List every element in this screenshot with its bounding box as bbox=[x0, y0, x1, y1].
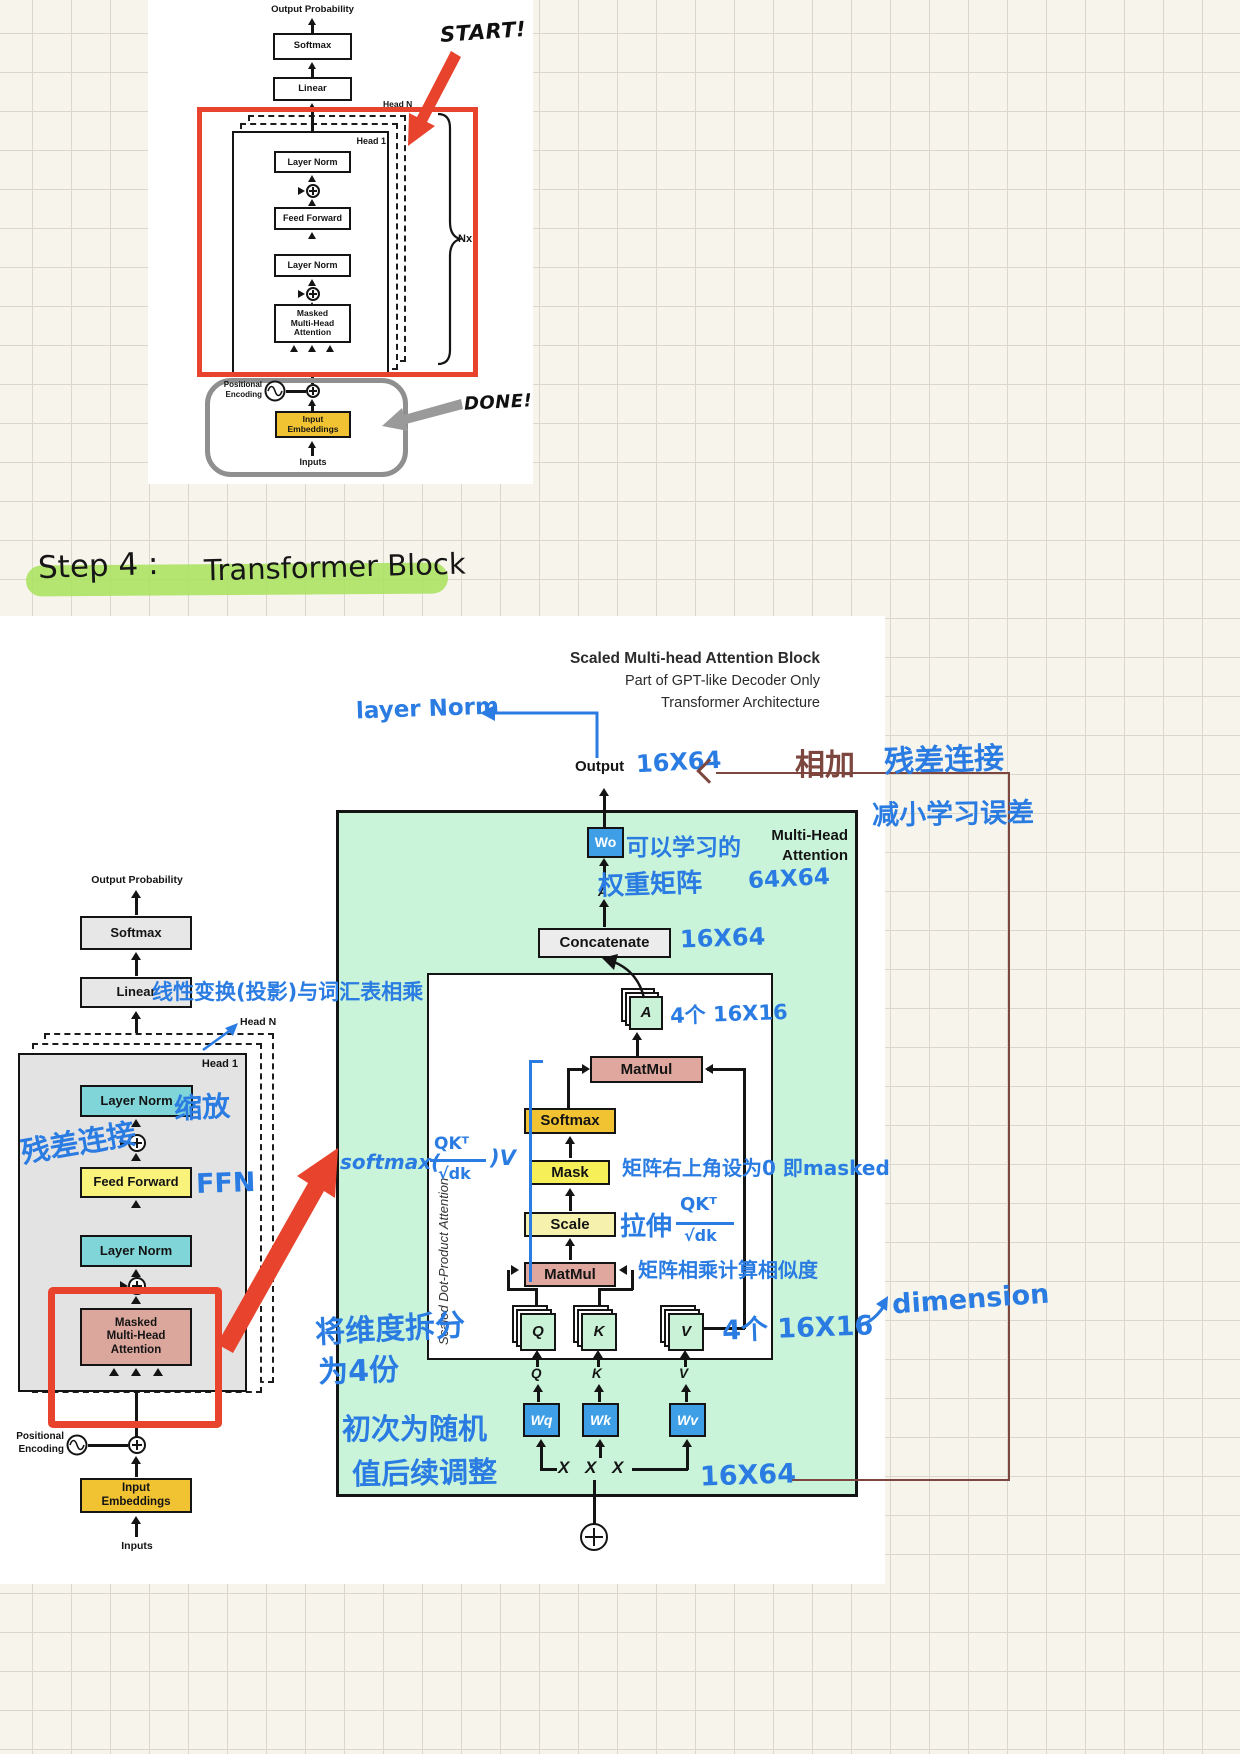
line bbox=[540, 1446, 543, 1470]
main-title-line1: Scaled Multi-head Attention Block bbox=[420, 650, 820, 668]
top-softmax-box: Softmax bbox=[273, 33, 352, 60]
line bbox=[603, 795, 606, 827]
line bbox=[569, 1143, 572, 1158]
arrow bbox=[565, 1238, 575, 1246]
arrow bbox=[682, 1439, 692, 1447]
mask-note: 矩阵右上角设为0 即masked bbox=[622, 1152, 890, 1181]
step-title-name: Transformer Block bbox=[204, 547, 466, 588]
add-note: 相加 bbox=[795, 740, 855, 784]
arrow bbox=[565, 1188, 575, 1196]
arrow bbox=[131, 1269, 141, 1277]
matmul-top-box: MatMul bbox=[590, 1056, 703, 1083]
label: Positional bbox=[206, 380, 262, 390]
top-positional-encoding-label: Positional Encoding bbox=[206, 380, 262, 401]
weight-matrix-note: 权重矩阵 bbox=[597, 862, 702, 903]
label: Embeddings bbox=[101, 1496, 170, 1509]
stretch-note: 拉伸 bbox=[620, 1206, 672, 1243]
arrow bbox=[593, 1350, 603, 1358]
label: K bbox=[594, 1323, 605, 1340]
v-label: V bbox=[679, 1366, 688, 1381]
wq-box: Wq bbox=[523, 1403, 560, 1437]
wv-box: Wv bbox=[669, 1403, 706, 1437]
matmul-bottom-box: MatMul bbox=[524, 1262, 616, 1287]
line bbox=[537, 1391, 540, 1402]
learnable-note: 可以学习的 bbox=[626, 828, 741, 862]
v-card: V bbox=[668, 1313, 704, 1351]
label: Q bbox=[532, 1323, 544, 1340]
scale-zh-note: 缩放 bbox=[173, 1085, 231, 1128]
line bbox=[569, 1195, 572, 1211]
left-input-embeddings-box: InputEmbeddings bbox=[80, 1478, 192, 1513]
arrow bbox=[680, 1350, 690, 1358]
label: Positional bbox=[4, 1430, 64, 1443]
arrow bbox=[511, 1265, 519, 1275]
label: Wk bbox=[590, 1412, 611, 1428]
notebook-page: Output Probability Softmax Linear Head N… bbox=[0, 0, 1240, 1754]
line bbox=[286, 390, 306, 393]
mask-box: Mask bbox=[530, 1160, 610, 1185]
start-arrow bbox=[398, 48, 462, 152]
left-softmax-box: Softmax bbox=[80, 916, 192, 950]
arrow bbox=[131, 890, 141, 898]
red-focus-rect-main bbox=[48, 1287, 222, 1428]
linear-note: 线性变换(投影)与词汇表相乘 bbox=[152, 976, 423, 1006]
residual-line-bottom bbox=[792, 1479, 1010, 1481]
wo-box: Wo bbox=[587, 827, 624, 858]
left-layernorm2-box: Layer Norm bbox=[80, 1235, 192, 1267]
arrow bbox=[705, 1064, 713, 1074]
left-feedforward-box: Feed Forward bbox=[80, 1167, 192, 1198]
left-output-probability: Output Probability bbox=[88, 874, 186, 886]
arrow bbox=[308, 441, 316, 448]
line bbox=[135, 959, 138, 976]
line bbox=[599, 1446, 602, 1458]
arrow bbox=[599, 788, 609, 796]
line bbox=[311, 447, 314, 456]
arrow bbox=[131, 1153, 141, 1161]
head-n-blue-arrow bbox=[198, 1020, 244, 1054]
arrow bbox=[533, 1384, 543, 1392]
big-red-arrow bbox=[205, 1138, 350, 1366]
sine-symbol bbox=[264, 380, 286, 402]
formula-denominator: √dk bbox=[438, 1164, 471, 1183]
label: Mask bbox=[551, 1164, 589, 1181]
line bbox=[507, 1288, 537, 1291]
line bbox=[685, 1391, 688, 1402]
label: Wo bbox=[595, 834, 617, 850]
a-count-note: 4个 16X16 bbox=[670, 996, 789, 1030]
formula-suffix: )V bbox=[490, 1146, 516, 1170]
label: V bbox=[681, 1323, 691, 1340]
layer-norm-arrow bbox=[478, 700, 606, 762]
line bbox=[593, 1480, 596, 1524]
x-label-2: X bbox=[585, 1458, 596, 1478]
top-inputs-label: Inputs bbox=[287, 457, 339, 467]
label: Wq bbox=[531, 1412, 553, 1428]
main-title-line2: Part of GPT-like Decoder Only bbox=[420, 673, 820, 689]
left-inputs-label: Inputs bbox=[108, 1540, 166, 1552]
line bbox=[569, 1245, 572, 1260]
left-head1-label: Head 1 bbox=[188, 1058, 238, 1070]
concat-hook-arrow bbox=[598, 952, 654, 1002]
scale-box: Scale bbox=[524, 1212, 616, 1237]
softmax-box: Softmax bbox=[524, 1108, 616, 1134]
blue-bracket-line bbox=[529, 1060, 532, 1282]
arrow bbox=[308, 62, 316, 69]
wk-box: Wk bbox=[582, 1403, 619, 1437]
add-symbol-large bbox=[580, 1523, 608, 1551]
arrow bbox=[582, 1064, 590, 1074]
init-note-line2: 值后续调整 bbox=[352, 1449, 498, 1494]
add-symbol bbox=[306, 384, 320, 398]
k-card: K bbox=[581, 1313, 617, 1351]
line bbox=[598, 1391, 601, 1402]
label: Encoding bbox=[4, 1443, 64, 1456]
k-label: K bbox=[592, 1366, 602, 1381]
top-linear-box: Linear bbox=[273, 77, 352, 101]
line bbox=[311, 24, 314, 33]
arrow bbox=[632, 1032, 642, 1040]
q-card: Q bbox=[520, 1313, 556, 1351]
arrow bbox=[131, 1516, 141, 1524]
dimension-note: dimension bbox=[891, 1279, 1050, 1321]
x-label-3: X bbox=[612, 1458, 623, 1478]
left-head-n-label: Head N bbox=[240, 1016, 276, 1028]
arrow bbox=[131, 1011, 141, 1019]
matmul-note: 矩阵相乘计算相似度 bbox=[638, 1254, 818, 1283]
label: MatMul bbox=[544, 1266, 596, 1283]
line bbox=[631, 1270, 634, 1290]
label: Layer Norm bbox=[100, 1094, 172, 1109]
reduce-error-note: 减小学习误差 bbox=[872, 791, 1035, 833]
q-label: Q bbox=[531, 1366, 542, 1381]
formula-prefix: softmax( bbox=[340, 1150, 440, 1174]
label: Input bbox=[122, 1482, 150, 1495]
arrow bbox=[308, 18, 316, 25]
label: Concatenate bbox=[559, 934, 649, 951]
step-title-prefix: Step 4 : bbox=[37, 546, 159, 586]
label: Layer Norm bbox=[100, 1244, 172, 1259]
line bbox=[598, 1288, 633, 1291]
label: A bbox=[641, 1004, 652, 1021]
stretch-bar bbox=[676, 1222, 734, 1225]
arrow bbox=[308, 399, 316, 406]
line bbox=[686, 1446, 689, 1470]
qkv-count-note: 4个 16X16 bbox=[721, 1303, 873, 1347]
top-input-embeddings-box: Input Embeddings bbox=[275, 411, 351, 438]
line bbox=[603, 906, 606, 927]
arrow bbox=[131, 1456, 141, 1464]
label: Softmax bbox=[110, 926, 161, 941]
label: Wv bbox=[677, 1412, 698, 1428]
init-note-line1: 初次为随机 bbox=[342, 1406, 487, 1448]
residual-line-right bbox=[1008, 772, 1010, 1481]
sine-symbol-main bbox=[66, 1434, 88, 1456]
input-dim-note: 16X64 bbox=[699, 1458, 796, 1492]
label: Linear bbox=[298, 84, 327, 95]
arrow bbox=[681, 1384, 691, 1392]
line bbox=[636, 1039, 639, 1056]
line bbox=[135, 1523, 138, 1537]
top-output-probability: Output Probability bbox=[250, 4, 375, 15]
label: Embeddings bbox=[287, 425, 338, 435]
label: Softmax bbox=[294, 41, 331, 52]
line bbox=[135, 1463, 138, 1477]
arrow bbox=[536, 1439, 546, 1447]
line bbox=[507, 1270, 510, 1290]
label: Softmax bbox=[540, 1112, 599, 1129]
line bbox=[311, 68, 314, 77]
residual-note: 残差连接 bbox=[883, 733, 1004, 781]
line bbox=[540, 1468, 557, 1471]
label: Scale bbox=[550, 1216, 589, 1233]
arrow bbox=[619, 1265, 627, 1275]
arrow bbox=[532, 1350, 542, 1358]
done-arrow bbox=[376, 396, 468, 436]
arrow bbox=[594, 1384, 604, 1392]
label: MatMul bbox=[621, 1061, 673, 1078]
arrow bbox=[595, 1439, 605, 1447]
stretch-numerator: QKᵀ bbox=[680, 1194, 717, 1215]
done-label: DONE! bbox=[463, 390, 532, 415]
arrow bbox=[131, 1200, 141, 1208]
left-positional-encoding-label: Positional Encoding bbox=[4, 1430, 64, 1456]
add-symbol bbox=[128, 1436, 146, 1454]
concat-dim-note: 16X64 bbox=[680, 923, 766, 954]
label: Linear bbox=[116, 985, 155, 1000]
line bbox=[567, 1068, 570, 1108]
arrow bbox=[565, 1136, 575, 1144]
line bbox=[88, 1444, 128, 1447]
label: Encoding bbox=[206, 390, 262, 400]
wo-dim-note: 64X64 bbox=[747, 864, 830, 894]
dimension-arrow bbox=[852, 1294, 896, 1330]
line bbox=[632, 1468, 688, 1471]
label: Feed Forward bbox=[93, 1175, 178, 1190]
stretch-denominator: √dk bbox=[684, 1226, 717, 1245]
line bbox=[743, 1068, 746, 1329]
formula-numerator: QKᵀ bbox=[434, 1134, 469, 1154]
line bbox=[135, 897, 138, 915]
arrow bbox=[131, 952, 141, 960]
x-label-1: X bbox=[558, 1458, 569, 1478]
